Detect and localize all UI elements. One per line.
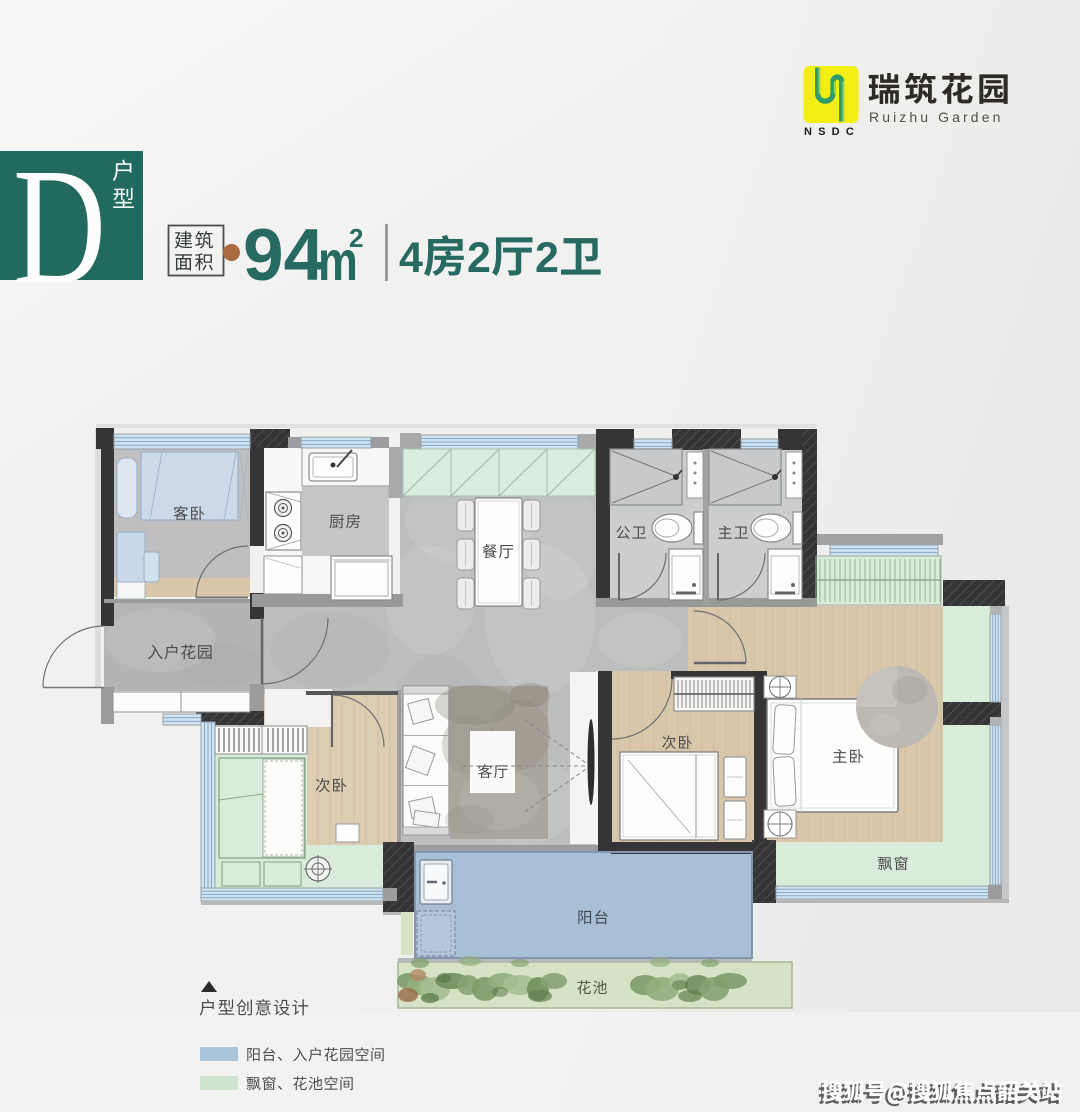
- svg-text:NSDC: NSDC: [804, 126, 860, 138]
- svg-text:4: 4: [399, 234, 423, 282]
- svg-text:2: 2: [467, 234, 491, 282]
- svg-text:D: D: [13, 134, 106, 320]
- svg-text:94: 94: [243, 215, 325, 296]
- svg-text:2: 2: [349, 223, 363, 253]
- svg-text:Ruizhu Garden: Ruizhu Garden: [869, 109, 1003, 125]
- svg-text:2: 2: [535, 234, 559, 282]
